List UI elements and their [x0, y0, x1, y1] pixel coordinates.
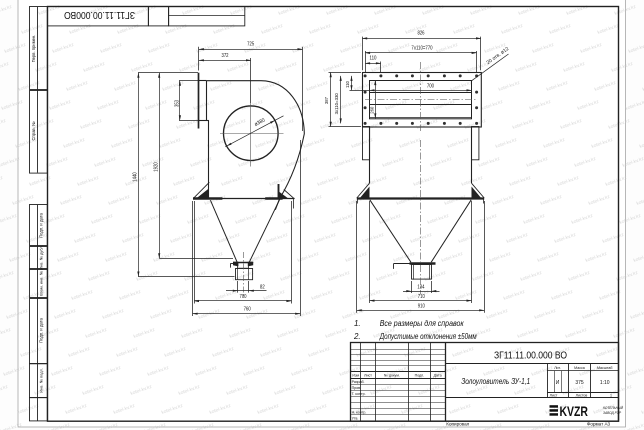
svg-text:Масса: Масса [574, 366, 585, 370]
svg-text:Разраб.: Разраб. [352, 380, 365, 384]
svg-text:725: 725 [247, 42, 254, 48]
svg-text:Копировал: Копировал [446, 422, 469, 427]
svg-text:110: 110 [345, 81, 350, 88]
svg-text:1920: 1920 [153, 162, 159, 171]
svg-text:Дата: Дата [434, 374, 442, 378]
svg-text:1440: 1440 [133, 172, 139, 181]
svg-text:372: 372 [221, 53, 228, 59]
svg-text:Перв. примен.: Перв. примен. [31, 35, 36, 63]
svg-text:760: 760 [244, 307, 251, 313]
svg-text:№ докум.: № докум. [384, 374, 400, 378]
svg-text:Подп.: Подп. [415, 374, 425, 378]
svg-text:Лист: Лист [364, 374, 372, 378]
svg-text:1.: 1. [354, 319, 361, 328]
svg-text:Инв. № подл.: Инв. № подл. [38, 368, 43, 393]
svg-text:ЗГ11.11.00.000ВО: ЗГ11.11.00.000ВО [64, 9, 135, 21]
svg-text:134: 134 [417, 285, 424, 291]
svg-text:ЗГ11.11.00.000 ВО: ЗГ11.11.00.000 ВО [494, 350, 567, 361]
svg-text:Подп. и дата: Подп. и дата [38, 212, 43, 237]
svg-text:910: 910 [418, 303, 425, 309]
svg-text:2.: 2. [353, 332, 361, 341]
svg-text:375: 375 [575, 380, 584, 386]
svg-text:Т. контр.: Т. контр. [352, 392, 366, 396]
svg-text:353: 353 [175, 100, 181, 107]
svg-text:700: 700 [239, 294, 246, 300]
svg-text:Утв.: Утв. [352, 417, 359, 421]
svg-text:Пров.: Пров. [352, 386, 362, 390]
svg-text:Лист: Лист [550, 393, 558, 397]
svg-text:82: 82 [260, 284, 265, 290]
svg-text:1: 1 [610, 393, 612, 397]
svg-text:КОТЕЛЬНЫЙ: КОТЕЛЬНЫЙ [603, 406, 624, 410]
svg-text:И: И [556, 380, 560, 386]
svg-text:ЗАВОД РЭР: ЗАВОД РЭР [603, 411, 622, 415]
svg-text:700: 700 [427, 83, 434, 89]
svg-text:3x110=330: 3x110=330 [334, 93, 339, 115]
svg-text:Золоуловитель ЗУ-1,1: Золоуловитель ЗУ-1,1 [461, 376, 530, 386]
svg-text:Инв. № дубл.: Инв. № дубл. [38, 245, 43, 270]
svg-text:7x110=770: 7x110=770 [411, 45, 432, 51]
svg-text:110: 110 [369, 56, 376, 62]
svg-text:Масштаб: Масштаб [597, 366, 612, 370]
svg-text:Справ. №: Справ. № [31, 121, 36, 141]
svg-text:Подп. и дата: Подп. и дата [38, 317, 43, 342]
svg-text:826: 826 [417, 31, 424, 37]
svg-text:Формат А3: Формат А3 [587, 422, 611, 427]
svg-text:KVZR: KVZR [560, 403, 589, 419]
svg-text:Н. контр.: Н. контр. [352, 410, 367, 414]
svg-text:Листов: Листов [576, 393, 588, 397]
svg-text:Взам. инв. №: Взам. инв. № [38, 271, 43, 296]
svg-text:Лит.: Лит. [554, 366, 561, 370]
svg-text:Все размеры для справок: Все размеры для справок [380, 319, 465, 328]
svg-text:Допустимые отклонения ±50мм: Допустимые отклонения ±50мм [379, 332, 477, 341]
svg-text:Изм: Изм [352, 374, 359, 378]
svg-text:710: 710 [418, 294, 425, 300]
svg-text:1:10: 1:10 [600, 380, 610, 386]
svg-text:260: 260 [369, 106, 374, 113]
svg-text:387: 387 [324, 97, 329, 104]
